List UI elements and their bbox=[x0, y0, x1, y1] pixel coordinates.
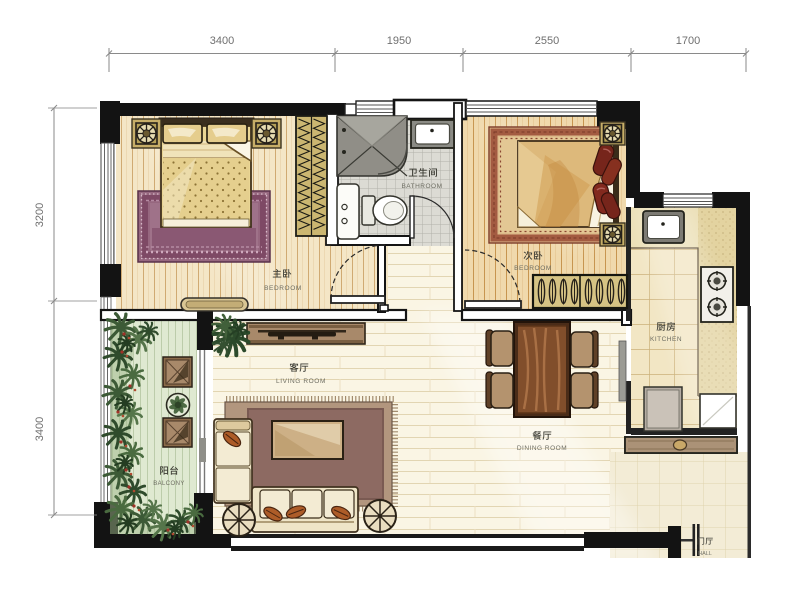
svg-text:BATHROOM: BATHROOM bbox=[401, 183, 442, 190]
svg-text:1950: 1950 bbox=[387, 35, 411, 47]
svg-text:KITCHEN: KITCHEN bbox=[650, 336, 682, 343]
svg-text:3400: 3400 bbox=[210, 35, 234, 47]
svg-text:1700: 1700 bbox=[676, 35, 700, 47]
svg-text:2550: 2550 bbox=[535, 35, 559, 47]
svg-text:3200: 3200 bbox=[34, 203, 46, 227]
svg-text:BEDROOM: BEDROOM bbox=[514, 265, 552, 272]
svg-text:DINING ROOM: DINING ROOM bbox=[517, 445, 567, 452]
svg-text:BALCONY: BALCONY bbox=[153, 481, 184, 487]
svg-text:BEDROOM: BEDROOM bbox=[264, 285, 302, 292]
svg-text:3400: 3400 bbox=[34, 417, 46, 441]
svg-text:HALL: HALL bbox=[698, 551, 712, 557]
svg-text:LIVING ROOM: LIVING ROOM bbox=[276, 378, 326, 385]
